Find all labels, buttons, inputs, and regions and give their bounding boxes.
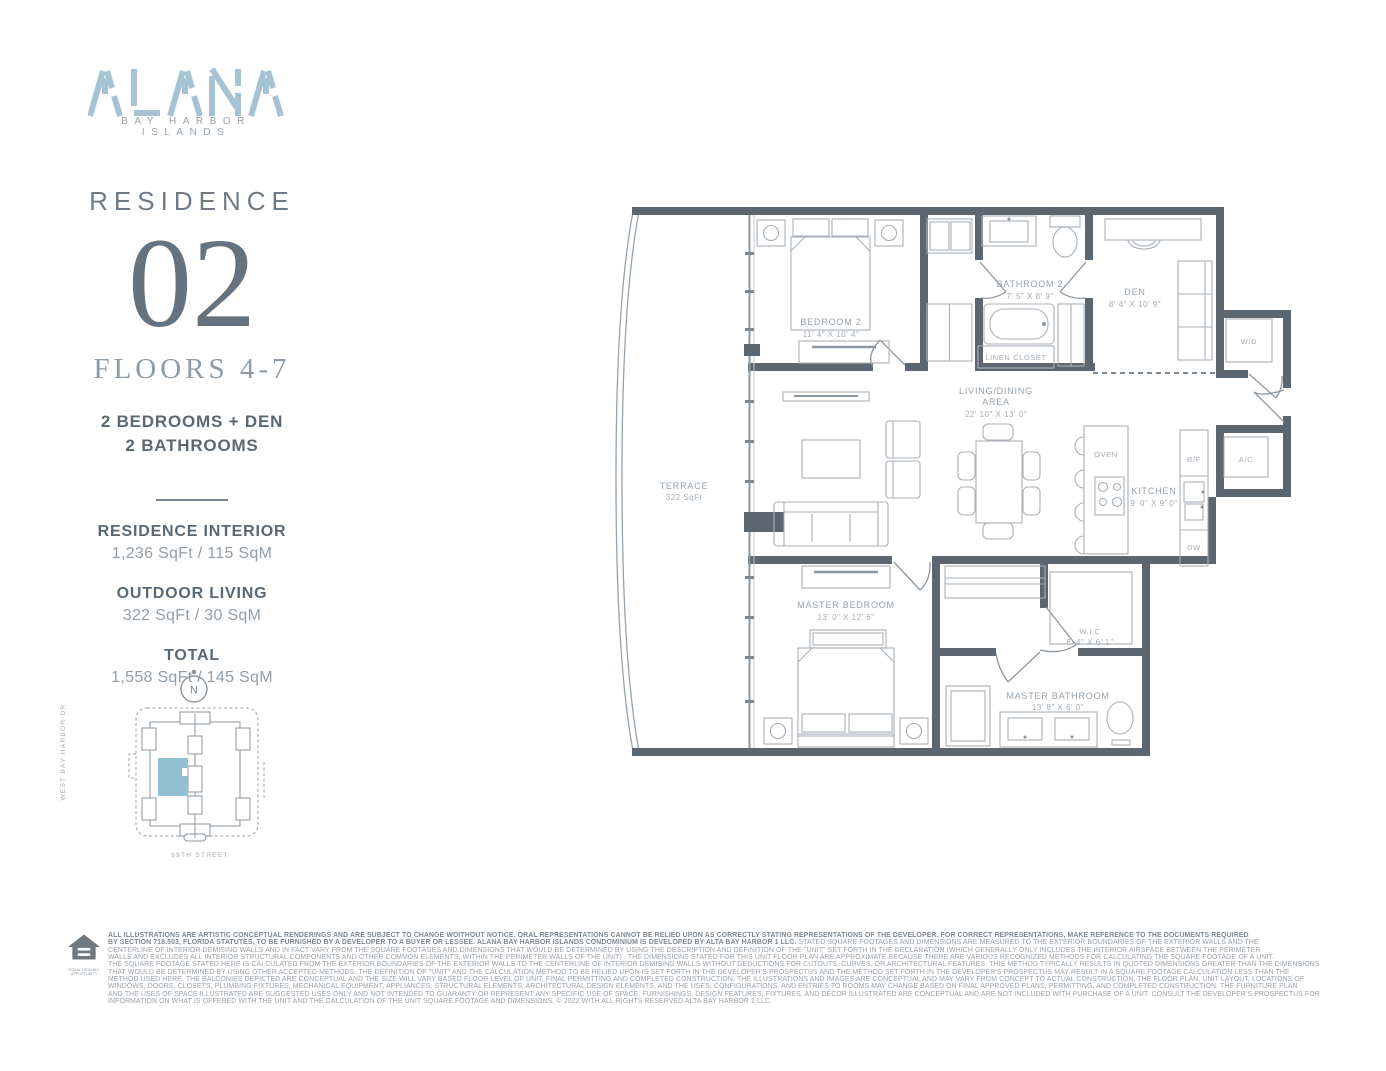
toilet2-tank xyxy=(1050,216,1080,227)
label-bedroom2: BEDROOM 2 xyxy=(800,317,861,327)
disclaimer-line: ALL ILLUSTRATIONS ARE ARTISTIC CONCEPTUA… xyxy=(108,932,1362,939)
config-bedrooms: 2 BEDROOMS + DEN xyxy=(62,410,322,435)
label-kitchen-dims: 9' 0" X 9' 0" xyxy=(1130,499,1177,508)
label-masterbath: MASTER BATHROOM xyxy=(1006,691,1109,701)
desk xyxy=(1105,219,1201,240)
label-bedroom2-dims: 11' 4" X 10' 4" xyxy=(803,330,860,339)
stat-interior-label: RESIDENCE INTERIOR xyxy=(62,523,322,541)
disclaimer-line: METHOD USED HERE. THE BALCONIES DEPICTED… xyxy=(108,976,1362,983)
stat-interior: RESIDENCE INTERIOR 1,236 SqFt / 115 SqM xyxy=(62,523,322,563)
config-bathrooms: 2 BATHROOMS xyxy=(62,434,322,459)
kitchen-sink xyxy=(1184,482,1204,502)
dining-table xyxy=(976,441,1022,523)
label-living2: AREA xyxy=(982,397,1010,407)
keyplan-unit-highlight xyxy=(158,758,188,796)
label-kitchen: KITCHEN xyxy=(1131,486,1176,496)
shelf-unit xyxy=(1178,261,1212,360)
sofa xyxy=(774,502,888,546)
brand-tagline: BAY HARBOR ISLANDS xyxy=(88,116,284,138)
label-den: DEN xyxy=(1124,287,1145,297)
stat-outdoor-value: 322 SqFt / 30 SqM xyxy=(62,607,322,625)
label-masterbath-dims: 13' 8" X 6' 0" xyxy=(1032,703,1084,712)
disclaimer-line: THAT WOULD BE DETERMINED BY USING OTHER … xyxy=(108,969,1362,976)
label-wic-dims: 6' 4" X 6' 1" xyxy=(1066,638,1113,647)
compass-n: N xyxy=(190,685,198,697)
label-wd: W/D xyxy=(1241,337,1257,346)
label-oven: OVEN xyxy=(1094,450,1118,459)
brochure-page: BAY HARBOR ISLANDS RESIDENCE 02 FLOORS 4… xyxy=(0,0,1386,1071)
disclaimer-line: THE SQUARE FOOTAGE STATED HERE IS CALCUL… xyxy=(108,961,1362,968)
coffee-table xyxy=(802,440,860,478)
street-label-west-bay-harbor: WEST BAY HARBOR DR xyxy=(60,692,67,812)
street-label-99th: 99TH STREET xyxy=(150,852,250,859)
stat-outdoor-label: OUTDOOR LIVING xyxy=(62,585,322,603)
residence-info: RESIDENCE 02 FLOORS 4-7 2 BEDROOMS + DEN… xyxy=(62,186,322,687)
bedroom2-furniture xyxy=(757,219,972,363)
disclaimer-line: INFORMATION ON WHAT IS OFFERED WITH THE … xyxy=(108,998,1362,1005)
disclaimer-line: WALLS AND EXCLUDES ALL INTERIOR STRUCTUR… xyxy=(108,954,1362,961)
shower xyxy=(946,686,990,746)
label-linen: LINEN CLOSET xyxy=(985,353,1046,362)
equal-housing-icon xyxy=(67,932,101,962)
disclaimer: EQUAL HOUSING OPPORTUNITY ALL ILLUSTRATI… xyxy=(62,932,1362,1005)
disclaimer-line: AND THE USES OF SPACE ILLUSTRATED ARE SU… xyxy=(108,991,1362,998)
label-den-dims: 8' 4" X 10' 9" xyxy=(1109,300,1161,309)
disclaimer-line: WINDOWS, DOORS, CLOSETS, PLUMBING FIXTUR… xyxy=(108,983,1362,990)
keyplan xyxy=(120,702,272,854)
label-terrace: TERRACE xyxy=(660,481,709,491)
label-bathroom2-dims: 7' 5" X 8' 9" xyxy=(1006,292,1053,301)
residence-floors: FLOORS 4-7 xyxy=(62,353,322,386)
toilet2 xyxy=(1053,227,1077,257)
label-ac: A/C xyxy=(1239,455,1253,464)
compass: N xyxy=(168,660,220,708)
floorplan: TERRACE 322 SqFt BEDROOM 2 11' 4" X 10' … xyxy=(600,190,1320,770)
master-vanity xyxy=(1000,712,1097,747)
disclaimer-text: ALL ILLUSTRATIONS ARE ARTISTIC CONCEPTUA… xyxy=(108,932,1362,1005)
label-living-dims: 22' 10" X 13' 0" xyxy=(965,410,1027,419)
residence-number: 02 xyxy=(62,225,322,343)
terrace-railing xyxy=(616,212,639,751)
window-wall xyxy=(745,215,754,748)
disclaimer-line: BY SECTION 718.503, FLORIDA STATUTES, TO… xyxy=(108,939,1362,946)
den-furniture xyxy=(1105,219,1212,360)
label-terrace-size: 322 SqFt xyxy=(666,493,703,502)
label-master: MASTER BEDROOM xyxy=(797,600,895,610)
label-dw: DW xyxy=(1187,543,1201,552)
master-toilet xyxy=(1107,702,1133,734)
equal-housing-caption: EQUAL HOUSING OPPORTUNITY xyxy=(62,968,106,976)
label-wic: W.I.C xyxy=(1079,627,1100,636)
foyer-closet xyxy=(945,566,1132,644)
stat-interior-value: 1,236 SqFt / 115 SqM xyxy=(62,545,322,563)
label-living1: LIVING/DINING xyxy=(959,386,1033,396)
stat-outdoor: OUTDOOR LIVING 322 SqFt / 30 SqM xyxy=(62,585,322,625)
label-rf: R/F xyxy=(1187,455,1201,464)
divider-line xyxy=(156,499,228,501)
dining-furniture xyxy=(958,424,1040,539)
equal-housing-block: EQUAL HOUSING OPPORTUNITY xyxy=(62,932,106,1005)
label-master-dims: 13' 0" X 12' 6" xyxy=(817,613,874,622)
master-furniture xyxy=(764,566,928,747)
residence-config: 2 BEDROOMS + DEN 2 BATHROOMS xyxy=(62,410,322,459)
label-bathroom2: BATHROOM 2 xyxy=(997,279,1064,289)
living-furniture xyxy=(774,392,920,546)
master-bed xyxy=(798,648,894,736)
brand-logo-alana xyxy=(88,66,284,118)
disclaimer-line: CENTERLINE OF INTERIOR DEMISING WALLS AN… xyxy=(108,947,1362,954)
